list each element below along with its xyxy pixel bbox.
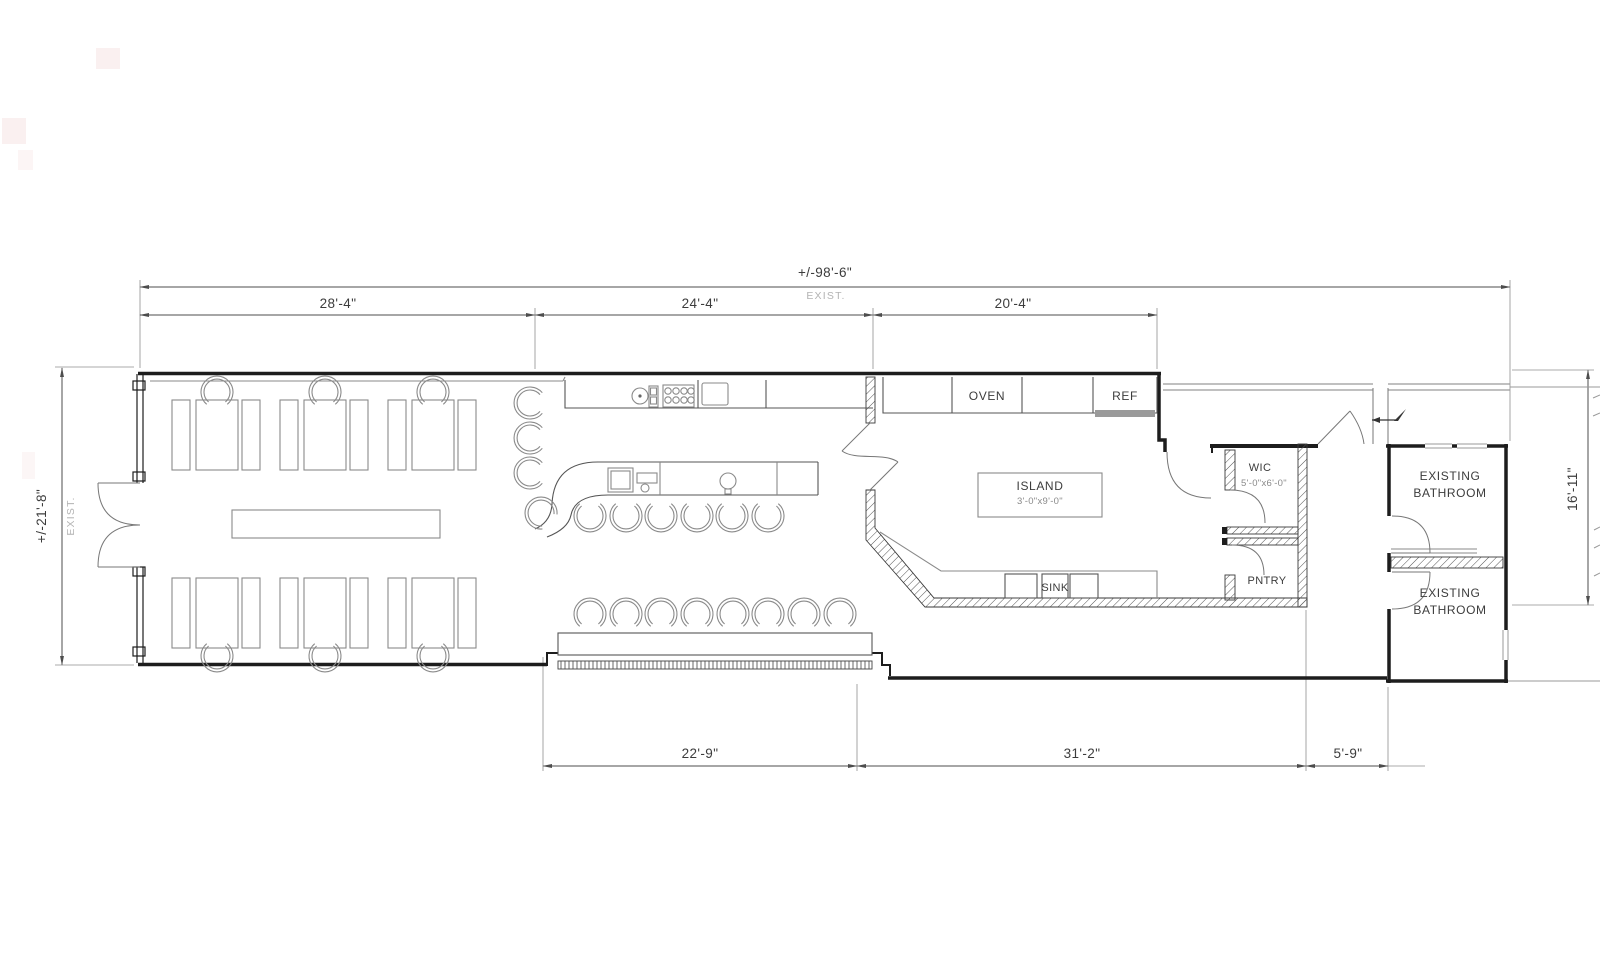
wic-door-swing xyxy=(1230,490,1265,523)
bathroom1-label: EXISTING BATHROOM xyxy=(1413,469,1486,500)
ref-front-panel xyxy=(1095,410,1155,417)
booth-group xyxy=(172,578,476,648)
svg-text:BATHROOM: BATHROOM xyxy=(1413,486,1486,500)
burner-grid-icon xyxy=(663,385,694,407)
dimension-layer: +/-98'-6" EXIST. 28'-4" 24'-4" 20'-4" +/… xyxy=(34,265,1600,771)
dim-overall-top: +/-98'-6" xyxy=(798,265,852,280)
scan-artifacts xyxy=(2,48,120,479)
pantry-label: PNTRY xyxy=(1247,575,1286,587)
svg-text:EXISTING: EXISTING xyxy=(1420,586,1481,600)
floor-plan-canvas: +/-98'-6" EXIST. 28'-4" 24'-4" 20'-4" +/… xyxy=(0,0,1600,958)
double-acting-door xyxy=(842,423,898,490)
floor-plan-drawing: +/-98'-6" EXIST. 28'-4" 24'-4" 20'-4" +/… xyxy=(0,0,1600,958)
entry-double-door xyxy=(98,483,140,567)
wic-label: WIC xyxy=(1249,462,1272,474)
dim-right: 16'-11" xyxy=(1565,467,1580,511)
svg-text:EXISTING: EXISTING xyxy=(1420,469,1481,483)
island-size-label: 3'-0"x9'-0" xyxy=(1017,496,1063,507)
dim-top-right: 20'-4" xyxy=(995,296,1032,311)
existing-top-wall xyxy=(1163,384,1600,390)
svg-text:BATHROOM: BATHROOM xyxy=(1413,603,1486,617)
dim-bottom-left: 22'-9" xyxy=(682,746,719,761)
espresso-machine-icon xyxy=(649,386,658,407)
bar-back-counter xyxy=(565,380,873,408)
dim-bottom-right: 5'-9" xyxy=(1334,746,1363,761)
edge-tick-marks xyxy=(1593,395,1600,576)
dim-overall-top-note: EXIST. xyxy=(806,290,845,302)
card-reader-icon xyxy=(637,473,657,492)
dim-top-mid: 24'-4" xyxy=(682,296,719,311)
coffee-grinder-icon xyxy=(632,388,648,404)
corridor-swing-door xyxy=(1318,411,1364,444)
pos-register-icon xyxy=(608,468,633,492)
dim-left-note: EXIST. xyxy=(65,496,77,535)
dim-top-left: 28'-4" xyxy=(320,296,357,311)
bar-kitchen-partition xyxy=(842,377,1307,607)
bar-stools xyxy=(514,387,784,533)
island-label: ISLAND xyxy=(1017,479,1064,493)
ref-label: REF xyxy=(1112,389,1138,403)
walls-layer xyxy=(98,374,1600,684)
bathroom2-label: EXISTING BATHROOM xyxy=(1413,586,1486,617)
tap-icon xyxy=(720,473,736,494)
dim-left: +/-21'-8" xyxy=(34,489,49,543)
oven-label: OVEN xyxy=(969,389,1005,403)
sink-label: SINK xyxy=(1041,582,1069,594)
dining-booths xyxy=(172,376,476,672)
wic-size-label: 5'-0"x6'-0" xyxy=(1241,478,1287,489)
kitchen-island: ISLAND 3'-0"x9'-0" xyxy=(978,473,1102,517)
drop-in-sink-icon xyxy=(702,383,728,405)
storefront-glazing xyxy=(558,633,872,669)
exit-arrow-icon xyxy=(1372,409,1406,423)
bathroom1-door xyxy=(1392,516,1430,553)
kitchen-door-swing xyxy=(1167,452,1211,498)
kitchen-wall-counter: OVEN REF xyxy=(883,377,1157,417)
bathroom-right-window xyxy=(1503,630,1508,660)
pantry-door-swing xyxy=(1232,545,1264,575)
corridor-top-door xyxy=(1372,388,1406,444)
booth-group xyxy=(172,400,476,470)
window-stools xyxy=(574,598,856,626)
furniture-layer: OVEN REF ISLAND 3'-0"x9'-0" SINK WIC 5'-… xyxy=(172,376,1487,672)
dim-bottom-mid: 31'-2" xyxy=(1064,746,1101,761)
window-counter xyxy=(558,633,872,655)
communal-table xyxy=(232,510,440,538)
storefront-left-wall xyxy=(98,374,145,663)
